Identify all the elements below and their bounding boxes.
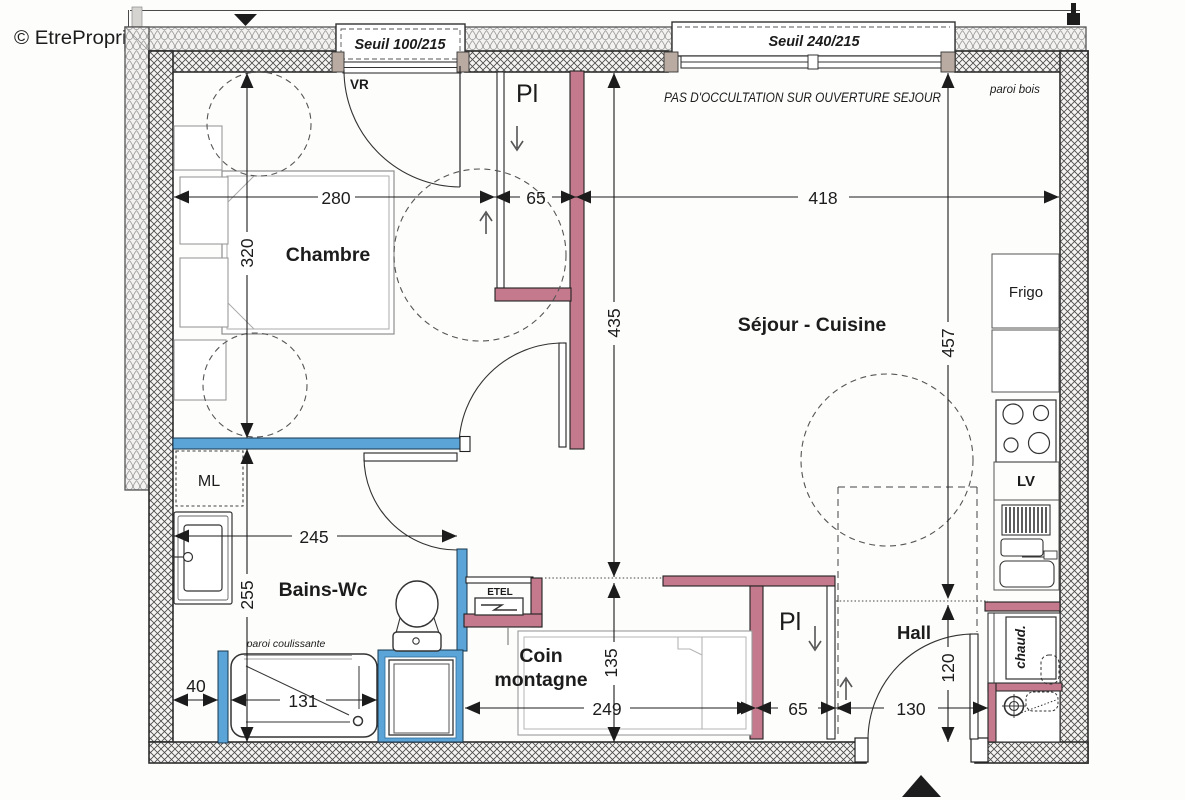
- svg-text:245: 245: [299, 527, 328, 547]
- svg-text:montagne: montagne: [494, 669, 587, 691]
- svg-text:320: 320: [237, 238, 257, 267]
- svg-text:Coin: Coin: [519, 645, 562, 667]
- svg-text:ML: ML: [198, 473, 220, 490]
- svg-text:255: 255: [237, 580, 257, 609]
- svg-text:131: 131: [288, 691, 317, 711]
- svg-text:40: 40: [186, 676, 206, 696]
- svg-text:457: 457: [938, 328, 958, 357]
- svg-text:VR: VR: [350, 77, 369, 92]
- svg-text:Hall: Hall: [897, 622, 931, 643]
- svg-text:chaud.: chaud.: [1013, 625, 1028, 669]
- svg-text:120: 120: [938, 653, 958, 682]
- svg-text:Chambre: Chambre: [286, 244, 371, 266]
- svg-text:Pl: Pl: [779, 608, 801, 636]
- svg-text:PAS D'OCCULTATION SUR OUVERTUR: PAS D'OCCULTATION SUR OUVERTURE SEJOUR: [664, 90, 941, 105]
- svg-text:LV: LV: [1017, 473, 1035, 490]
- svg-text:paroi coulissante: paroi coulissante: [246, 638, 326, 650]
- svg-text:Seuil 240/215: Seuil 240/215: [768, 34, 860, 50]
- svg-text:paroi bois: paroi bois: [989, 84, 1040, 96]
- svg-text:Frigo: Frigo: [1009, 284, 1043, 301]
- svg-text:418: 418: [808, 188, 837, 208]
- svg-text:Seuil 100/215: Seuil 100/215: [354, 37, 446, 53]
- svg-text:65: 65: [788, 699, 807, 719]
- svg-text:280: 280: [321, 188, 350, 208]
- svg-text:435: 435: [604, 308, 624, 337]
- svg-text:ETEL: ETEL: [487, 587, 513, 598]
- svg-text:Bains-Wc: Bains-Wc: [279, 579, 368, 601]
- svg-text:130: 130: [896, 699, 925, 719]
- svg-text:Séjour - Cuisine: Séjour - Cuisine: [738, 314, 887, 336]
- svg-text:249: 249: [592, 699, 621, 719]
- svg-text:135: 135: [601, 648, 621, 677]
- svg-text:Pl: Pl: [516, 80, 538, 108]
- svg-text:65: 65: [526, 188, 545, 208]
